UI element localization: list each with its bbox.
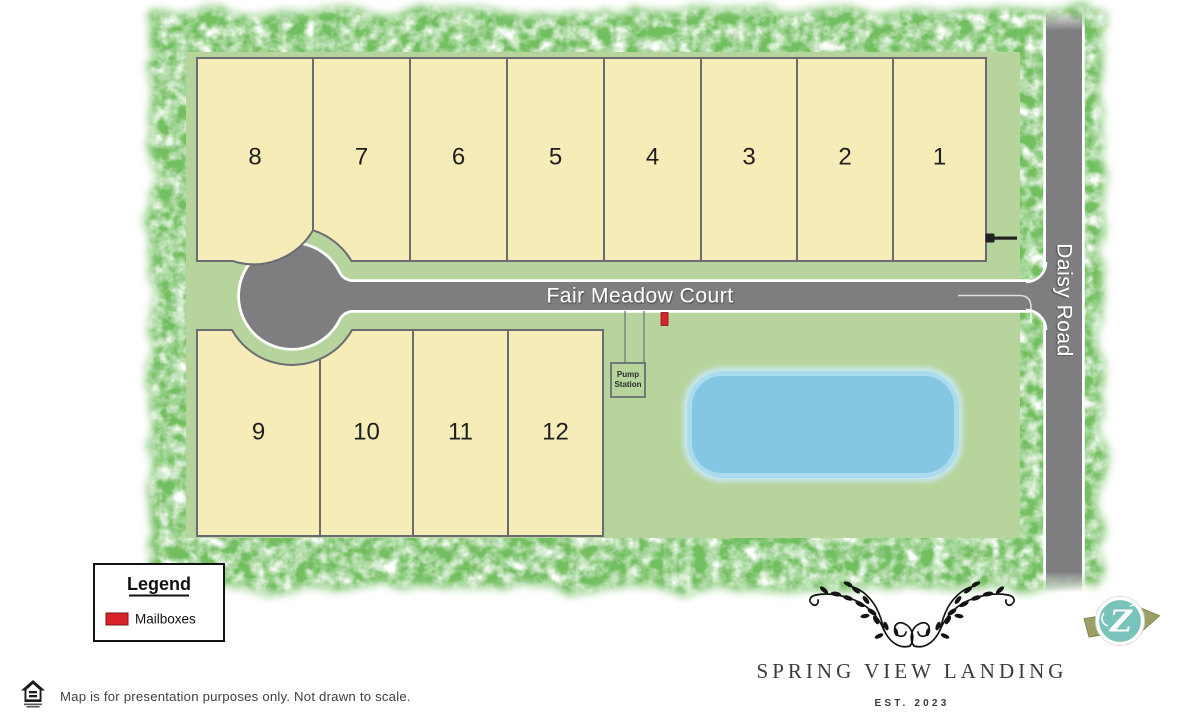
community-name: SPRING VIEW LANDING: [757, 659, 1068, 683]
road-label-fair-meadow-court: Fair Meadow Court: [546, 285, 733, 308]
community-logo: SPRING VIEW LANDING EST. 2023: [757, 580, 1068, 709]
lot-10-label: 10: [353, 419, 380, 446]
legend: Legend Mailboxes: [94, 564, 224, 641]
map-disclaimer: Map is for presentation purposes only. N…: [60, 689, 411, 704]
community-established: EST. 2023: [875, 698, 950, 709]
legend-title: Legend: [127, 574, 191, 594]
lot-6-label: 6: [452, 144, 465, 171]
lot-11-label: 11: [448, 419, 473, 446]
lot-12-label: 12: [542, 419, 569, 446]
builder-initial: Z: [1109, 605, 1133, 640]
mailbox-marker: [661, 313, 668, 326]
equal-housing-icon: [21, 680, 45, 708]
lot-1-label: 1: [933, 144, 946, 171]
lot-9-label: 9: [252, 419, 265, 446]
lot-2-label: 2: [838, 144, 851, 171]
pump-station-label-1: Pump: [617, 370, 639, 379]
pond: [683, 367, 963, 482]
lot-3-label: 3: [742, 144, 755, 171]
road-label-daisy-road: Daisy Road: [1053, 243, 1076, 357]
pond-water: [692, 376, 954, 473]
site-plan: 8 7 6 5 4 3 2 1 9 10 11 12 Pump Station: [0, 0, 1177, 717]
legend-mailbox-label: Mailboxes: [135, 612, 196, 627]
legend-mailbox-swatch: [106, 613, 128, 625]
lot-8-label: 8: [248, 144, 261, 171]
builder-logo: Z: [1082, 594, 1163, 650]
lot-4-label: 4: [646, 144, 659, 171]
lot-5-label: 5: [549, 144, 562, 171]
pump-station-label-2: Station: [614, 380, 641, 389]
site-map: 8 7 6 5 4 3 2 1 9 10 11 12 Pump Station: [0, 0, 1177, 717]
logo-flourish: [810, 580, 1014, 647]
lot-7-label: 7: [355, 144, 368, 171]
